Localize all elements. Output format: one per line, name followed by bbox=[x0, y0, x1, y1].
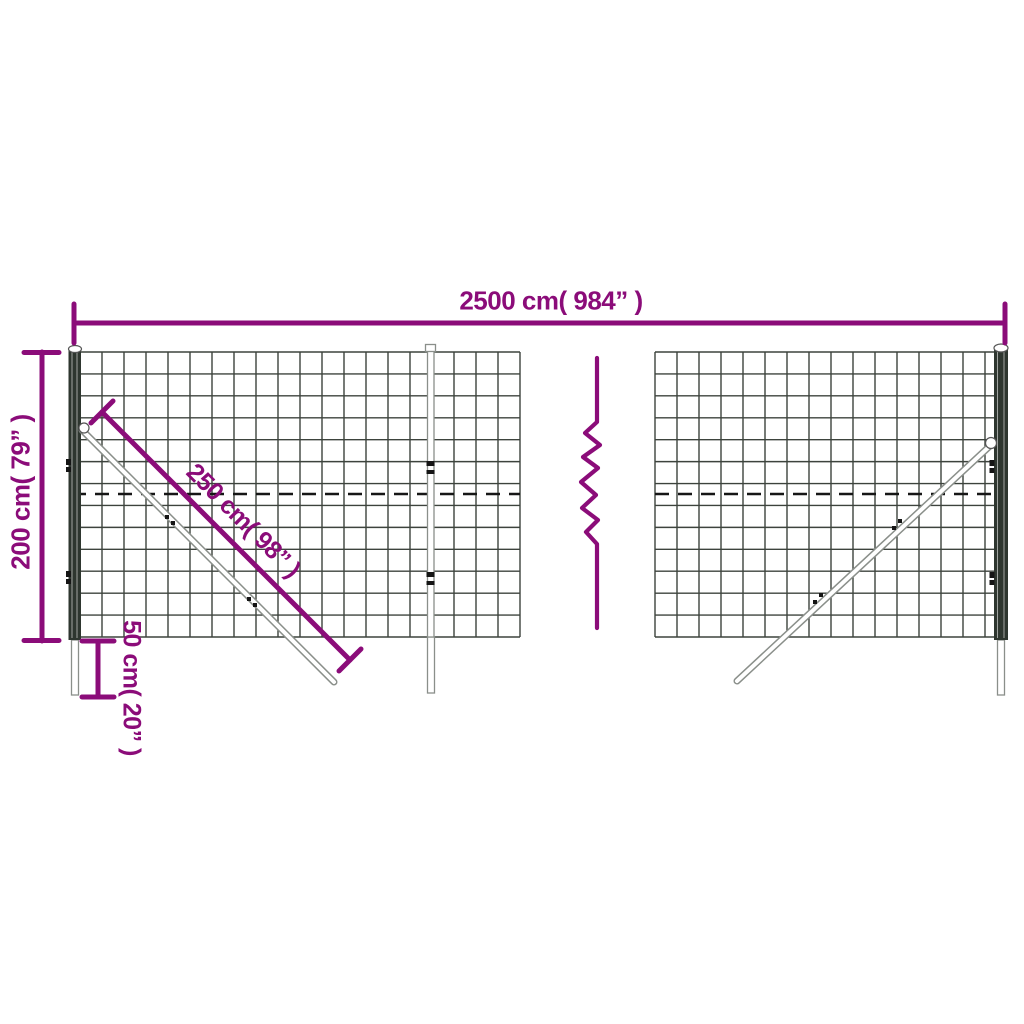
post-middle-clamp bbox=[427, 581, 435, 585]
post-middle-clamp bbox=[427, 461, 435, 466]
break-zigzag bbox=[581, 358, 600, 628]
post-right-clamp bbox=[990, 460, 995, 466]
post-left bbox=[66, 346, 82, 696]
total-width-label: 2500 cm( 984” ) bbox=[459, 286, 642, 317]
brace-right-clamp bbox=[819, 593, 823, 597]
post-left-cap bbox=[69, 346, 82, 353]
diagram-linework bbox=[0, 0, 1024, 1024]
post-middle-cap bbox=[426, 345, 436, 352]
brace-right bbox=[737, 438, 997, 682]
post-right-ground-spike bbox=[998, 640, 1005, 695]
dimension-ground-depth bbox=[82, 641, 114, 697]
post-right-clamp bbox=[990, 468, 995, 473]
ground-depth-label: 50 cm( 20” ) bbox=[117, 620, 146, 756]
brace-right-clamp bbox=[892, 526, 896, 530]
post-right-clamp bbox=[990, 580, 995, 585]
brace-left-ring bbox=[79, 423, 89, 433]
fence-dimension-diagram: 2500 cm( 984” ) 200 cm( 79” ) 250 cm( 98… bbox=[0, 0, 1024, 1024]
post-middle-ground-spike bbox=[428, 637, 435, 693]
post-left-clamp bbox=[66, 467, 71, 472]
post-left-ground-spike bbox=[72, 640, 79, 695]
total-height-label: 200 cm( 79” ) bbox=[6, 414, 37, 569]
post-left-clamp bbox=[66, 571, 71, 577]
brace-left-clamp bbox=[253, 603, 257, 607]
brace-right-ring bbox=[986, 438, 997, 449]
post-middle bbox=[426, 345, 436, 694]
post-right bbox=[990, 344, 1009, 695]
brace-left-clamp bbox=[247, 597, 251, 601]
brace-right-clamp bbox=[898, 519, 902, 523]
post-left-clamp bbox=[66, 459, 71, 465]
brace-right-clamp bbox=[813, 600, 817, 604]
post-left-clamp bbox=[66, 579, 71, 584]
brace-left-clamp bbox=[165, 515, 169, 519]
post-middle-clamp bbox=[427, 572, 435, 577]
post-left-body bbox=[69, 350, 82, 640]
post-middle-clamp bbox=[427, 470, 435, 474]
brace-left-clamp bbox=[171, 521, 175, 525]
post-right-clamp bbox=[990, 572, 995, 578]
post-right-body bbox=[994, 350, 1008, 640]
post-middle-body bbox=[428, 351, 435, 637]
brace-right-fill bbox=[737, 444, 992, 681]
